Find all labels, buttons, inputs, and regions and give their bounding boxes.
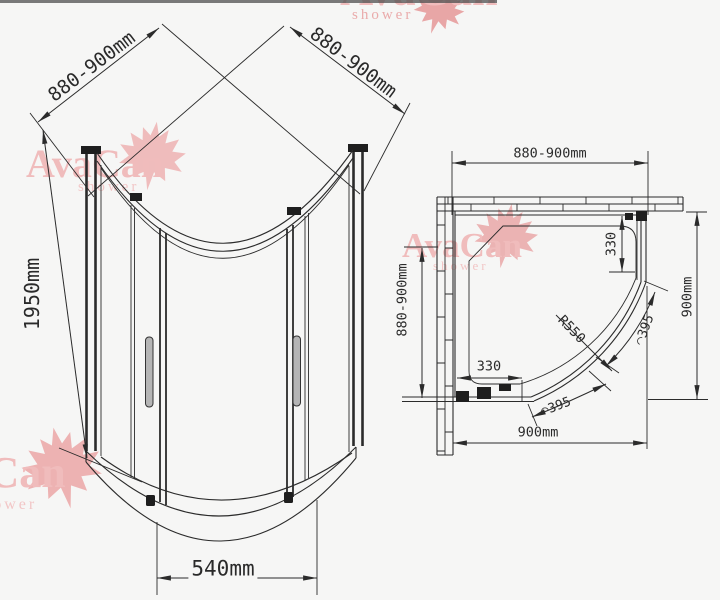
dim-plan-depth-left: 880-900mm	[396, 263, 410, 336]
shower-enclosure-technical-drawing: AvaCan shower AvaCan shower AvaCan showe…	[0, 0, 720, 600]
dim-iso-door-width: 540mm	[188, 559, 257, 580]
dim-plan-width-top: 880-900mm	[513, 147, 586, 161]
dim-plan-panel-bottom: 330	[477, 360, 501, 374]
dim-plan-panel-right: 330	[605, 232, 619, 256]
dim-plan-width-bottom: 900mm	[518, 426, 559, 440]
dim-plan-depth-right: 900mm	[681, 277, 695, 318]
iso-view	[30, 24, 410, 595]
dim-iso-height: 1950mm	[22, 258, 42, 330]
drawing-linework	[0, 0, 720, 600]
